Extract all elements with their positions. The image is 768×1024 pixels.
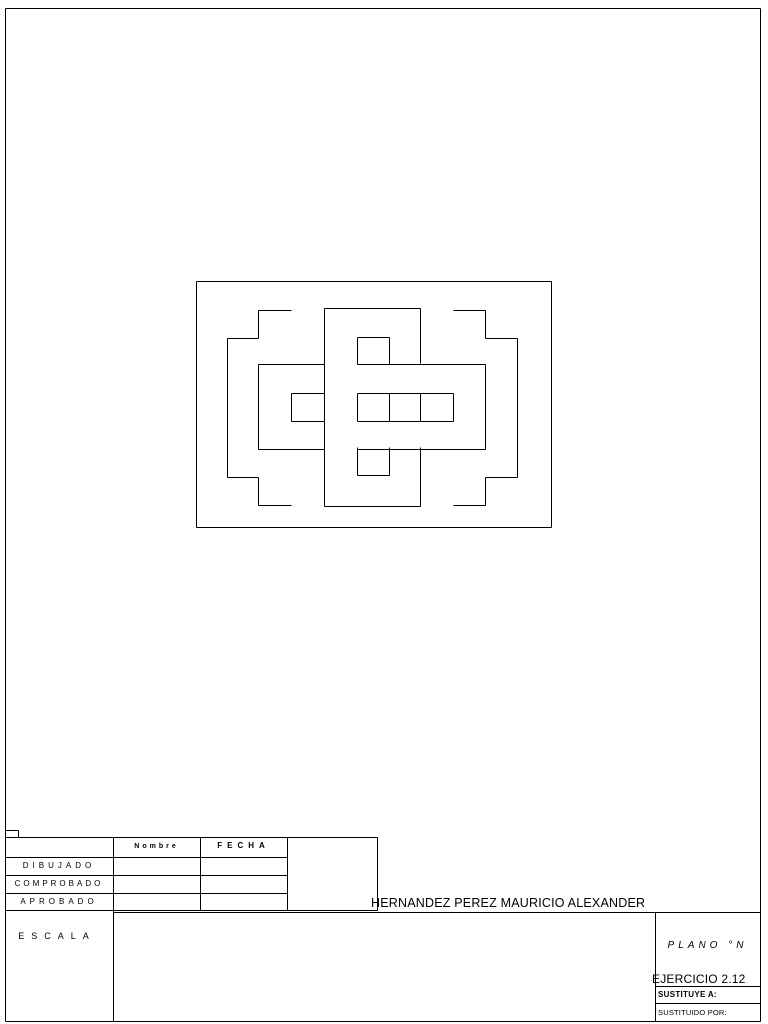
row-label-aprobado: APROBADO: [5, 898, 113, 906]
row-label-dibujado: DIBUJADO: [5, 862, 113, 870]
drawing-sheet-page: Nombre FECHA DIBUJADO COMPROBADO APROBAD…: [0, 0, 768, 1024]
author-name: HERNANDEZ PEREZ MAURICIO ALEXANDER: [371, 897, 645, 910]
sustituido-label: SUSTITUIDO POR:: [658, 1009, 727, 1017]
exercise-title: EJERCICIO 2.12: [652, 973, 746, 985]
escala-label: ESCALA: [5, 932, 109, 941]
header-fecha: FECHA: [200, 842, 287, 850]
sheet-lines-svg: [0, 0, 768, 1024]
header-nombre: Nombre: [113, 843, 200, 850]
plano-number-label: PLANO °N: [655, 941, 760, 951]
row-label-comprobado: COMPROBADO: [5, 880, 113, 888]
sustituye-label: SUSTITUYE A:: [658, 991, 717, 999]
